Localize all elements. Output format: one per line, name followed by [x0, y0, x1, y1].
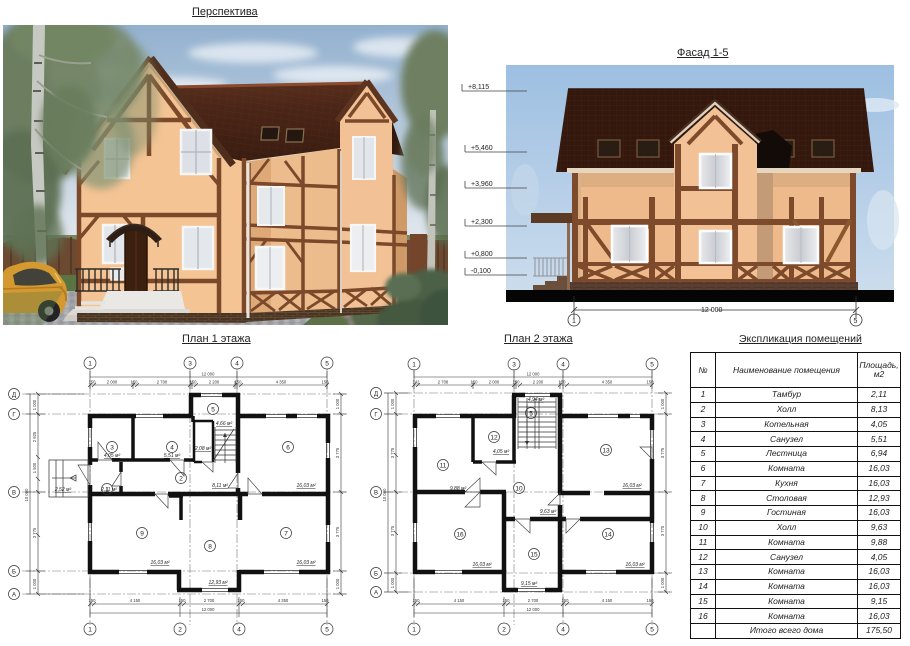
svg-text:1 000: 1 000 [335, 578, 340, 589]
svg-text:150: 150 [647, 380, 655, 385]
svg-text:Д: Д [374, 392, 378, 398]
svg-text:2: 2 [179, 476, 183, 483]
svg-text:150: 150 [647, 598, 655, 603]
svg-text:12 000: 12 000 [527, 372, 540, 377]
svg-text:4: 4 [235, 361, 239, 368]
svg-text:15: 15 [530, 552, 538, 559]
svg-text:4,94 м²: 4,94 м² [528, 397, 545, 403]
svg-text:4: 4 [170, 445, 174, 452]
svg-text:5: 5 [529, 411, 533, 418]
svg-text:150: 150 [322, 598, 330, 603]
svg-text:3 775: 3 775 [335, 447, 340, 458]
svg-text:150: 150 [503, 598, 511, 603]
svg-text:3 775: 3 775 [335, 526, 340, 537]
svg-text:9,63 м²: 9,63 м² [540, 509, 557, 515]
svg-text:2 200: 2 200 [533, 380, 544, 385]
svg-text:11: 11 [440, 463, 447, 470]
svg-text:9,88 м²: 9,88 м² [450, 486, 467, 492]
svg-text:1: 1 [412, 362, 416, 369]
svg-text:150: 150 [235, 380, 243, 385]
svg-text:2: 2 [502, 627, 506, 634]
svg-text:5: 5 [854, 318, 858, 325]
svg-text:Д: Д [12, 393, 16, 399]
svg-text:2 708: 2 708 [438, 380, 449, 385]
svg-text:2,08 м²: 2,08 м² [194, 446, 212, 452]
svg-text:3 775: 3 775 [660, 525, 665, 536]
svg-text:6: 6 [286, 445, 290, 452]
svg-text:2 000: 2 000 [489, 380, 500, 385]
svg-text:4,05 м²: 4,05 м² [493, 449, 510, 455]
svg-text:В: В [374, 491, 378, 497]
svg-text:9: 9 [140, 531, 144, 538]
svg-text:12: 12 [490, 435, 498, 442]
svg-text:12 000: 12 000 [202, 607, 215, 612]
svg-text:5: 5 [325, 361, 329, 368]
svg-text:3 775: 3 775 [390, 447, 395, 458]
svg-text:150: 150 [562, 598, 570, 603]
svg-text:150: 150 [179, 598, 187, 603]
svg-text:4 350: 4 350 [276, 380, 287, 385]
svg-text:5: 5 [650, 362, 654, 369]
svg-text:А: А [374, 591, 378, 597]
svg-text:10: 10 [515, 486, 523, 493]
svg-text:10 000: 10 000 [382, 488, 387, 501]
svg-text:150: 150 [513, 380, 521, 385]
svg-text:2,52 м²: 2,52 м² [54, 487, 72, 493]
svg-text:12 000: 12 000 [527, 607, 540, 612]
svg-text:16,03 м²: 16,03 м² [473, 562, 492, 568]
svg-text:1 000: 1 000 [32, 399, 37, 410]
svg-text:150: 150 [89, 598, 97, 603]
svg-text:14: 14 [604, 532, 612, 539]
svg-text:Г: Г [12, 413, 16, 419]
svg-text:8,11 м²: 8,11 м² [212, 483, 228, 489]
svg-text:В: В [12, 491, 16, 497]
svg-text:16: 16 [456, 532, 464, 539]
svg-text:150: 150 [322, 380, 330, 385]
svg-text:+5,460: +5,460 [471, 145, 493, 152]
svg-text:3: 3 [110, 445, 114, 452]
svg-text:+8,115: +8,115 [468, 84, 489, 91]
svg-text:1 000: 1 000 [390, 577, 395, 588]
svg-text:150: 150 [559, 380, 567, 385]
svg-text:1 000: 1 000 [390, 398, 395, 409]
svg-text:2,11 м²: 2,11 м² [100, 487, 117, 493]
svg-text:4,05 м²: 4,05 м² [104, 453, 121, 459]
svg-text:9,15 м²: 9,15 м² [521, 581, 538, 587]
svg-text:12 000: 12 000 [701, 307, 723, 314]
svg-text:150: 150 [413, 598, 421, 603]
svg-text:1 500: 1 500 [32, 462, 37, 473]
svg-text:4 350: 4 350 [278, 598, 289, 603]
svg-text:3 775: 3 775 [32, 527, 37, 538]
svg-text:+0,800: +0,800 [471, 251, 493, 258]
svg-text:5: 5 [325, 627, 329, 634]
svg-text:150: 150 [190, 380, 198, 385]
svg-text:2 000: 2 000 [107, 380, 118, 385]
svg-text:150: 150 [89, 380, 97, 385]
svg-text:4 350: 4 350 [602, 380, 613, 385]
svg-text:16,03 м²: 16,03 м² [297, 560, 316, 566]
svg-text:150: 150 [131, 380, 139, 385]
svg-text:3: 3 [512, 362, 516, 369]
svg-text:1 000: 1 000 [660, 577, 665, 588]
svg-text:2 200: 2 200 [209, 380, 220, 385]
svg-text:150: 150 [238, 598, 246, 603]
svg-text:3: 3 [188, 361, 192, 368]
svg-text:3 775: 3 775 [660, 447, 665, 458]
svg-text:4,66 м²: 4,66 м² [216, 421, 233, 427]
svg-text:4 150: 4 150 [602, 598, 613, 603]
svg-text:10 000: 10 000 [24, 488, 29, 501]
svg-text:16,03 м²: 16,03 м² [623, 483, 642, 489]
svg-text:Г: Г [374, 413, 378, 419]
svg-text:16,03 м²: 16,03 м² [151, 560, 170, 566]
svg-text:-0,100: -0,100 [471, 268, 491, 275]
svg-text:3 775: 3 775 [390, 525, 395, 536]
svg-text:2 700: 2 700 [528, 598, 539, 603]
svg-text:4 150: 4 150 [454, 598, 465, 603]
svg-text:12 000: 12 000 [202, 372, 215, 377]
svg-text:1: 1 [412, 627, 416, 634]
svg-text:+3,960: +3,960 [471, 181, 493, 188]
svg-text:2 700: 2 700 [157, 380, 168, 385]
svg-text:4 150: 4 150 [130, 598, 141, 603]
svg-text:142: 142 [413, 380, 421, 385]
svg-text:4: 4 [237, 627, 241, 634]
svg-text:12,93 м²: 12,93 м² [209, 580, 228, 586]
svg-text:150: 150 [471, 380, 479, 385]
svg-text:А: А [12, 593, 16, 599]
svg-text:13: 13 [602, 448, 610, 455]
svg-text:1: 1 [88, 627, 92, 634]
svg-text:7: 7 [284, 531, 288, 538]
svg-text:16,03 м²: 16,03 м² [297, 483, 316, 489]
svg-text:+2,300: +2,300 [471, 219, 493, 226]
svg-text:16,03 м²: 16,03 м² [626, 562, 645, 568]
svg-text:Б: Б [12, 570, 16, 576]
svg-text:5: 5 [211, 407, 215, 414]
svg-text:2 700: 2 700 [204, 598, 215, 603]
svg-text:8: 8 [208, 544, 212, 551]
svg-text:5: 5 [650, 627, 654, 634]
svg-text:Б: Б [374, 572, 378, 578]
svg-text:1: 1 [88, 361, 92, 368]
svg-text:2 925: 2 925 [32, 431, 37, 442]
svg-text:2: 2 [178, 627, 182, 634]
svg-text:4: 4 [561, 627, 565, 634]
svg-text:1 000: 1 000 [660, 398, 665, 409]
svg-text:1 000: 1 000 [32, 578, 37, 589]
svg-text:1 000: 1 000 [335, 398, 340, 409]
svg-text:5,51 м²: 5,51 м² [164, 453, 181, 459]
svg-text:4: 4 [561, 362, 565, 369]
svg-text:1: 1 [572, 318, 576, 325]
